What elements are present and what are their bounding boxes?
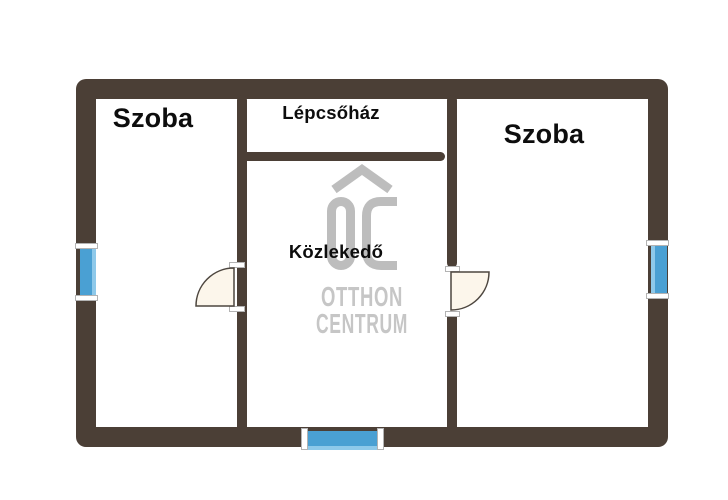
- floorplan-canvas: OTTHON CENTRUM Szoba Lépcsőház Szoba: [0, 0, 728, 500]
- window-right-glass: [655, 245, 667, 294]
- room-label-kozlekedo: Közlekedő: [246, 241, 426, 262]
- interior-wall-right-lower: [447, 312, 457, 431]
- interior-wall-right-upper: [447, 95, 457, 268]
- door-left-jamb-top: [229, 262, 245, 268]
- window-bottom-glass: [308, 431, 377, 446]
- room-label-szoba-left: Szoba: [96, 103, 210, 134]
- window-right-frame-cap-top: [646, 240, 669, 246]
- door-right-jamb-top: [445, 266, 460, 272]
- window-left-frame-cap-top: [75, 243, 98, 249]
- staircase-wall: [247, 152, 445, 161]
- room-label-lepcsohaz: Lépcsőház: [241, 102, 421, 123]
- window-left-glass-highlight: [92, 248, 96, 296]
- window-right-glass-highlight: [651, 245, 655, 294]
- window-left-frame-cap-bottom: [75, 295, 98, 301]
- window-bottom-frame-cap-right: [377, 428, 384, 450]
- door-left-jamb-bottom: [229, 306, 245, 312]
- window-bottom-frame-cap-left: [301, 428, 308, 450]
- room-label-szoba-right: Szoba: [487, 119, 601, 150]
- window-left-glass: [80, 248, 92, 296]
- window-bottom-glass-highlight: [308, 446, 377, 450]
- door-right-jamb-bottom: [445, 311, 460, 317]
- window-right-frame-cap-bottom: [646, 293, 669, 299]
